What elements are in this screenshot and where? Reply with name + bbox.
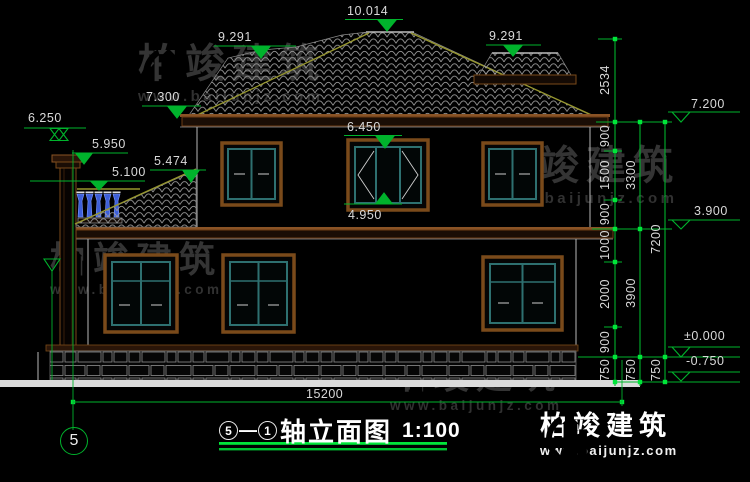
axis-bubble: 5 [60, 427, 88, 455]
dim-railing: 5.100 [112, 166, 146, 179]
dim-chimney-top: 6.250 [28, 112, 62, 125]
axis-dash: — [239, 420, 257, 441]
foundation [0, 345, 640, 387]
level-marker-eave-right [672, 112, 690, 122]
dim-v: 1500 [599, 160, 612, 190]
level-marker-terrace [44, 259, 60, 271]
level-marker-chimney-top [50, 129, 68, 141]
axis-circle-a: 5 [219, 421, 238, 440]
window-2f-right [483, 143, 542, 205]
dim-v: 3900 [625, 278, 638, 308]
chimney [52, 155, 84, 352]
brand-logo-block: 柏竣建筑 www.baijunjz.com [540, 412, 678, 458]
dim-roof-right: 9.291 [489, 30, 523, 43]
window-1f-left1 [105, 255, 177, 332]
drawing-title: 5 — 1 轴立面图 1:100 [219, 412, 461, 449]
dim-eave-right: 7.200 [691, 98, 725, 111]
dim-total-width: 15200 [306, 388, 343, 401]
ground-line [0, 380, 640, 387]
elevation-drawing [0, 0, 750, 482]
dim-ridge: 10.014 [347, 5, 388, 18]
dim-v: 2534 [599, 65, 612, 95]
dim-window-head: 6.450 [347, 121, 381, 134]
dim-window-sill: 4.950 [348, 209, 382, 222]
cad-elevation-sheet: 柏竣建筑 www.baijunjz.com 柏竣建筑 www.baijunjz.… [0, 0, 750, 482]
dim-porch-roof: 5.474 [154, 155, 188, 168]
main-eave-fascia [180, 114, 610, 127]
window-1f-left2 [223, 255, 294, 332]
dim-v: 1000 [599, 230, 612, 260]
dim-v: 900 [599, 331, 612, 353]
title-text: 轴立面图 [280, 412, 392, 449]
floor-band [68, 227, 613, 239]
dim-v: 2000 [599, 279, 612, 309]
right-wing-roof [474, 53, 576, 84]
dim-v: 900 [599, 203, 612, 225]
dim-chimney-cap: 5.950 [92, 138, 126, 151]
window-2f-left [222, 143, 281, 205]
baijun-logo-icon [540, 412, 594, 464]
window-1f-right [483, 257, 562, 330]
dim-v: 3300 [625, 160, 638, 190]
axis-circle-b: 1 [258, 421, 277, 440]
baluster-caps [77, 192, 121, 194]
dim-roof-left: 9.291 [218, 31, 252, 44]
dim-v: 750 [625, 359, 638, 381]
dim-v: 900 [599, 125, 612, 147]
level-marker-ridge [378, 20, 396, 31]
dim-footing: -0.750 [686, 355, 724, 368]
dim-v: 750 [599, 359, 612, 381]
title-scale: 1:100 [402, 419, 461, 443]
dim-floor2: 3.900 [694, 205, 728, 218]
dim-v: 750 [650, 359, 663, 381]
dim-v: 7200 [650, 224, 663, 254]
level-marker-footing [672, 372, 690, 381]
dim-ground: ±0.000 [684, 330, 725, 343]
level-marker-floor2 [672, 220, 690, 229]
dim-eave-left: 7.300 [146, 91, 180, 104]
